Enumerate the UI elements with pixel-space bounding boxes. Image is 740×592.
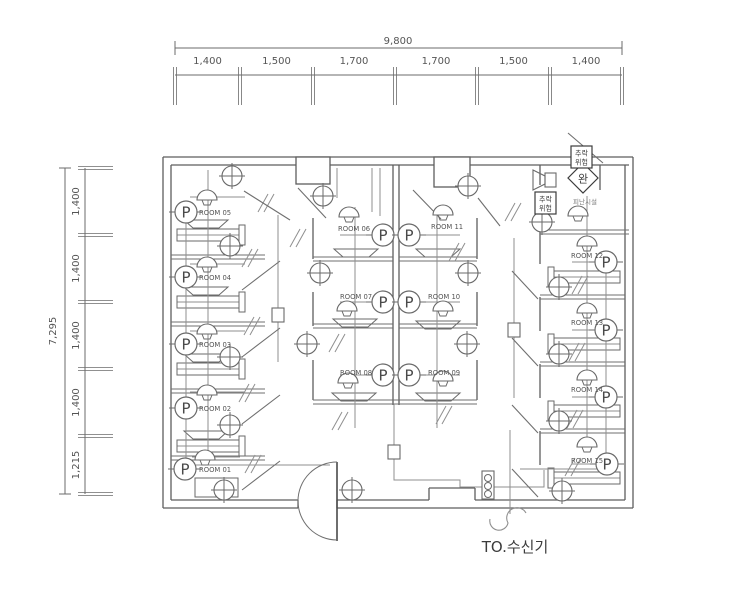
door-leaf bbox=[512, 469, 538, 497]
wire-slash-mark bbox=[505, 203, 515, 221]
smoke-detector-symbol bbox=[339, 207, 359, 217]
smoke-detector-symbol bbox=[577, 370, 597, 380]
smoke-detector-symbol bbox=[577, 303, 597, 313]
smoke-detector-base bbox=[344, 217, 354, 222]
p-unit-letter: P bbox=[180, 461, 189, 479]
dim-left-segment-label: 1,215 bbox=[71, 451, 82, 480]
evacuation-label: 피난시설 bbox=[573, 197, 597, 206]
door-leaf bbox=[242, 395, 280, 424]
smoke-detector-symbol bbox=[568, 206, 588, 216]
smoke-detector-base bbox=[582, 447, 592, 452]
smoke-detector-base bbox=[438, 311, 448, 316]
dim-left-segment-label: 1,400 bbox=[71, 388, 82, 417]
dim-left-segment-label: 1,400 bbox=[71, 254, 82, 283]
dim-top-segment-label: 1,700 bbox=[422, 56, 451, 67]
fall-warning-label: 위험 bbox=[539, 205, 552, 213]
floorplan-page: 9,8001,4001,5001,7001,7001,5001,4007,295… bbox=[0, 0, 740, 592]
p-unit-letter: P bbox=[404, 367, 413, 385]
wire-slash-mark bbox=[242, 249, 252, 267]
wire-slash-mark bbox=[296, 229, 306, 247]
dim-top-segment-label: 1,700 bbox=[340, 56, 369, 67]
smoke-detector-base bbox=[438, 215, 448, 220]
smoke-detector-base bbox=[202, 334, 212, 339]
smoke-detector-base bbox=[202, 267, 212, 272]
speaker-horn-icon bbox=[533, 170, 545, 190]
door-leaf bbox=[512, 338, 538, 366]
p-unit-letter: P bbox=[378, 367, 387, 385]
smoke-detector-base bbox=[438, 381, 448, 386]
p-unit-letter: P bbox=[378, 294, 387, 312]
fall-warning-label: 위험 bbox=[575, 159, 588, 167]
room-label: ROOM 08 bbox=[340, 369, 372, 377]
wire-slash-mark bbox=[245, 455, 255, 473]
room-label: ROOM 06 bbox=[338, 225, 370, 233]
wire-slash-mark bbox=[338, 412, 348, 430]
wire-slash-mark bbox=[573, 410, 583, 428]
smoke-detector-symbol bbox=[577, 437, 597, 447]
door-leaf bbox=[512, 405, 538, 433]
smoke-detector-base bbox=[573, 216, 583, 221]
room-label: ROOM 12 bbox=[571, 252, 603, 260]
wire-slash-mark bbox=[572, 276, 582, 294]
junction-box bbox=[508, 323, 520, 337]
dim-top-total-label: 9,800 bbox=[384, 36, 413, 47]
smoke-detector-symbol bbox=[577, 236, 597, 246]
receiver-label: TO.수신기 bbox=[481, 538, 549, 556]
smoke-detector-base bbox=[202, 395, 212, 400]
wire-slash-mark bbox=[329, 334, 339, 352]
sink bbox=[184, 431, 228, 439]
bed-headboard bbox=[239, 436, 245, 456]
wire-slash-mark bbox=[449, 243, 459, 261]
manual-station-box bbox=[482, 471, 494, 499]
p-unit-letter: P bbox=[378, 227, 387, 245]
p-unit-letter: P bbox=[404, 294, 413, 312]
dim-top-segment-label: 1,500 bbox=[262, 56, 291, 67]
room-label: ROOM 11 bbox=[431, 223, 463, 231]
junction-box bbox=[272, 308, 284, 322]
p-unit-letter: P bbox=[181, 269, 190, 287]
sink bbox=[184, 287, 228, 295]
smoke-detector-base bbox=[202, 200, 212, 205]
wire-slash-mark bbox=[335, 334, 345, 352]
dim-top-segment-label: 1,400 bbox=[193, 56, 222, 67]
smoke-detector-base bbox=[200, 460, 210, 465]
sink bbox=[334, 249, 378, 257]
room-label: ROOM 04 bbox=[199, 274, 231, 282]
bed-headboard bbox=[548, 468, 554, 488]
bed-headboard bbox=[239, 359, 245, 379]
room-label: ROOM 07 bbox=[340, 293, 372, 301]
dim-top-segment-label: 1,400 bbox=[572, 56, 601, 67]
room-label: ROOM 14 bbox=[571, 386, 603, 394]
bed-headboard bbox=[239, 225, 245, 245]
wire bbox=[494, 470, 544, 487]
p-unit-letter: P bbox=[181, 204, 190, 222]
floor-plan-svg: 9,8001,4001,5001,7001,7001,5001,4007,295… bbox=[0, 0, 740, 592]
smoke-detector-symbol bbox=[433, 205, 453, 215]
wire-slash-mark bbox=[442, 406, 452, 424]
descender-symbol-label: 완 bbox=[578, 173, 588, 186]
door-leaf bbox=[478, 198, 500, 226]
smoke-detector-symbol bbox=[197, 190, 217, 200]
wire-slash-mark bbox=[290, 229, 300, 247]
entrance-door-swing bbox=[298, 462, 337, 540]
dim-top-segment-label: 1,500 bbox=[499, 56, 528, 67]
room-label: ROOM 03 bbox=[199, 341, 231, 349]
dim-left-segment-label: 1,400 bbox=[71, 321, 82, 350]
room-label: ROOM 01 bbox=[199, 466, 231, 474]
room-label: ROOM 10 bbox=[428, 293, 460, 301]
fall-warning-label: 추락 bbox=[575, 150, 588, 158]
room-label: ROOM 15 bbox=[571, 457, 603, 465]
wire-slash-mark bbox=[332, 412, 342, 430]
receiver-wire-squiggle bbox=[490, 508, 526, 530]
dim-left-total-label: 7,295 bbox=[48, 317, 59, 346]
wire bbox=[394, 458, 482, 487]
junction-box bbox=[388, 445, 400, 459]
smoke-detector-base bbox=[342, 311, 352, 316]
wire-slash-mark bbox=[511, 203, 521, 221]
door-leaf bbox=[242, 261, 280, 290]
room-label: ROOM 05 bbox=[199, 209, 231, 217]
speaker-icon bbox=[545, 173, 556, 187]
room-label: ROOM 13 bbox=[571, 319, 603, 327]
p-unit-letter: P bbox=[404, 227, 413, 245]
wire-slash-mark bbox=[575, 343, 585, 361]
p-unit-letter: P bbox=[602, 456, 611, 474]
fall-warning-label: 추락 bbox=[539, 196, 552, 204]
wire-slash-mark bbox=[248, 249, 258, 267]
bed-headboard bbox=[239, 292, 245, 312]
door-leaf bbox=[242, 328, 280, 357]
door-leaf bbox=[512, 271, 538, 299]
room-label: ROOM 09 bbox=[428, 369, 460, 377]
room-label: ROOM 02 bbox=[199, 405, 231, 413]
smoke-detector-base bbox=[343, 383, 353, 388]
wire-slash-mark bbox=[251, 455, 261, 473]
wall-pier bbox=[296, 157, 330, 184]
dim-left-segment-label: 1,400 bbox=[71, 187, 82, 216]
p-unit-letter: P bbox=[181, 400, 190, 418]
p-unit-letter: P bbox=[181, 336, 190, 354]
smoke-detector-symbol bbox=[197, 385, 217, 395]
wire-slash-mark bbox=[569, 343, 579, 361]
